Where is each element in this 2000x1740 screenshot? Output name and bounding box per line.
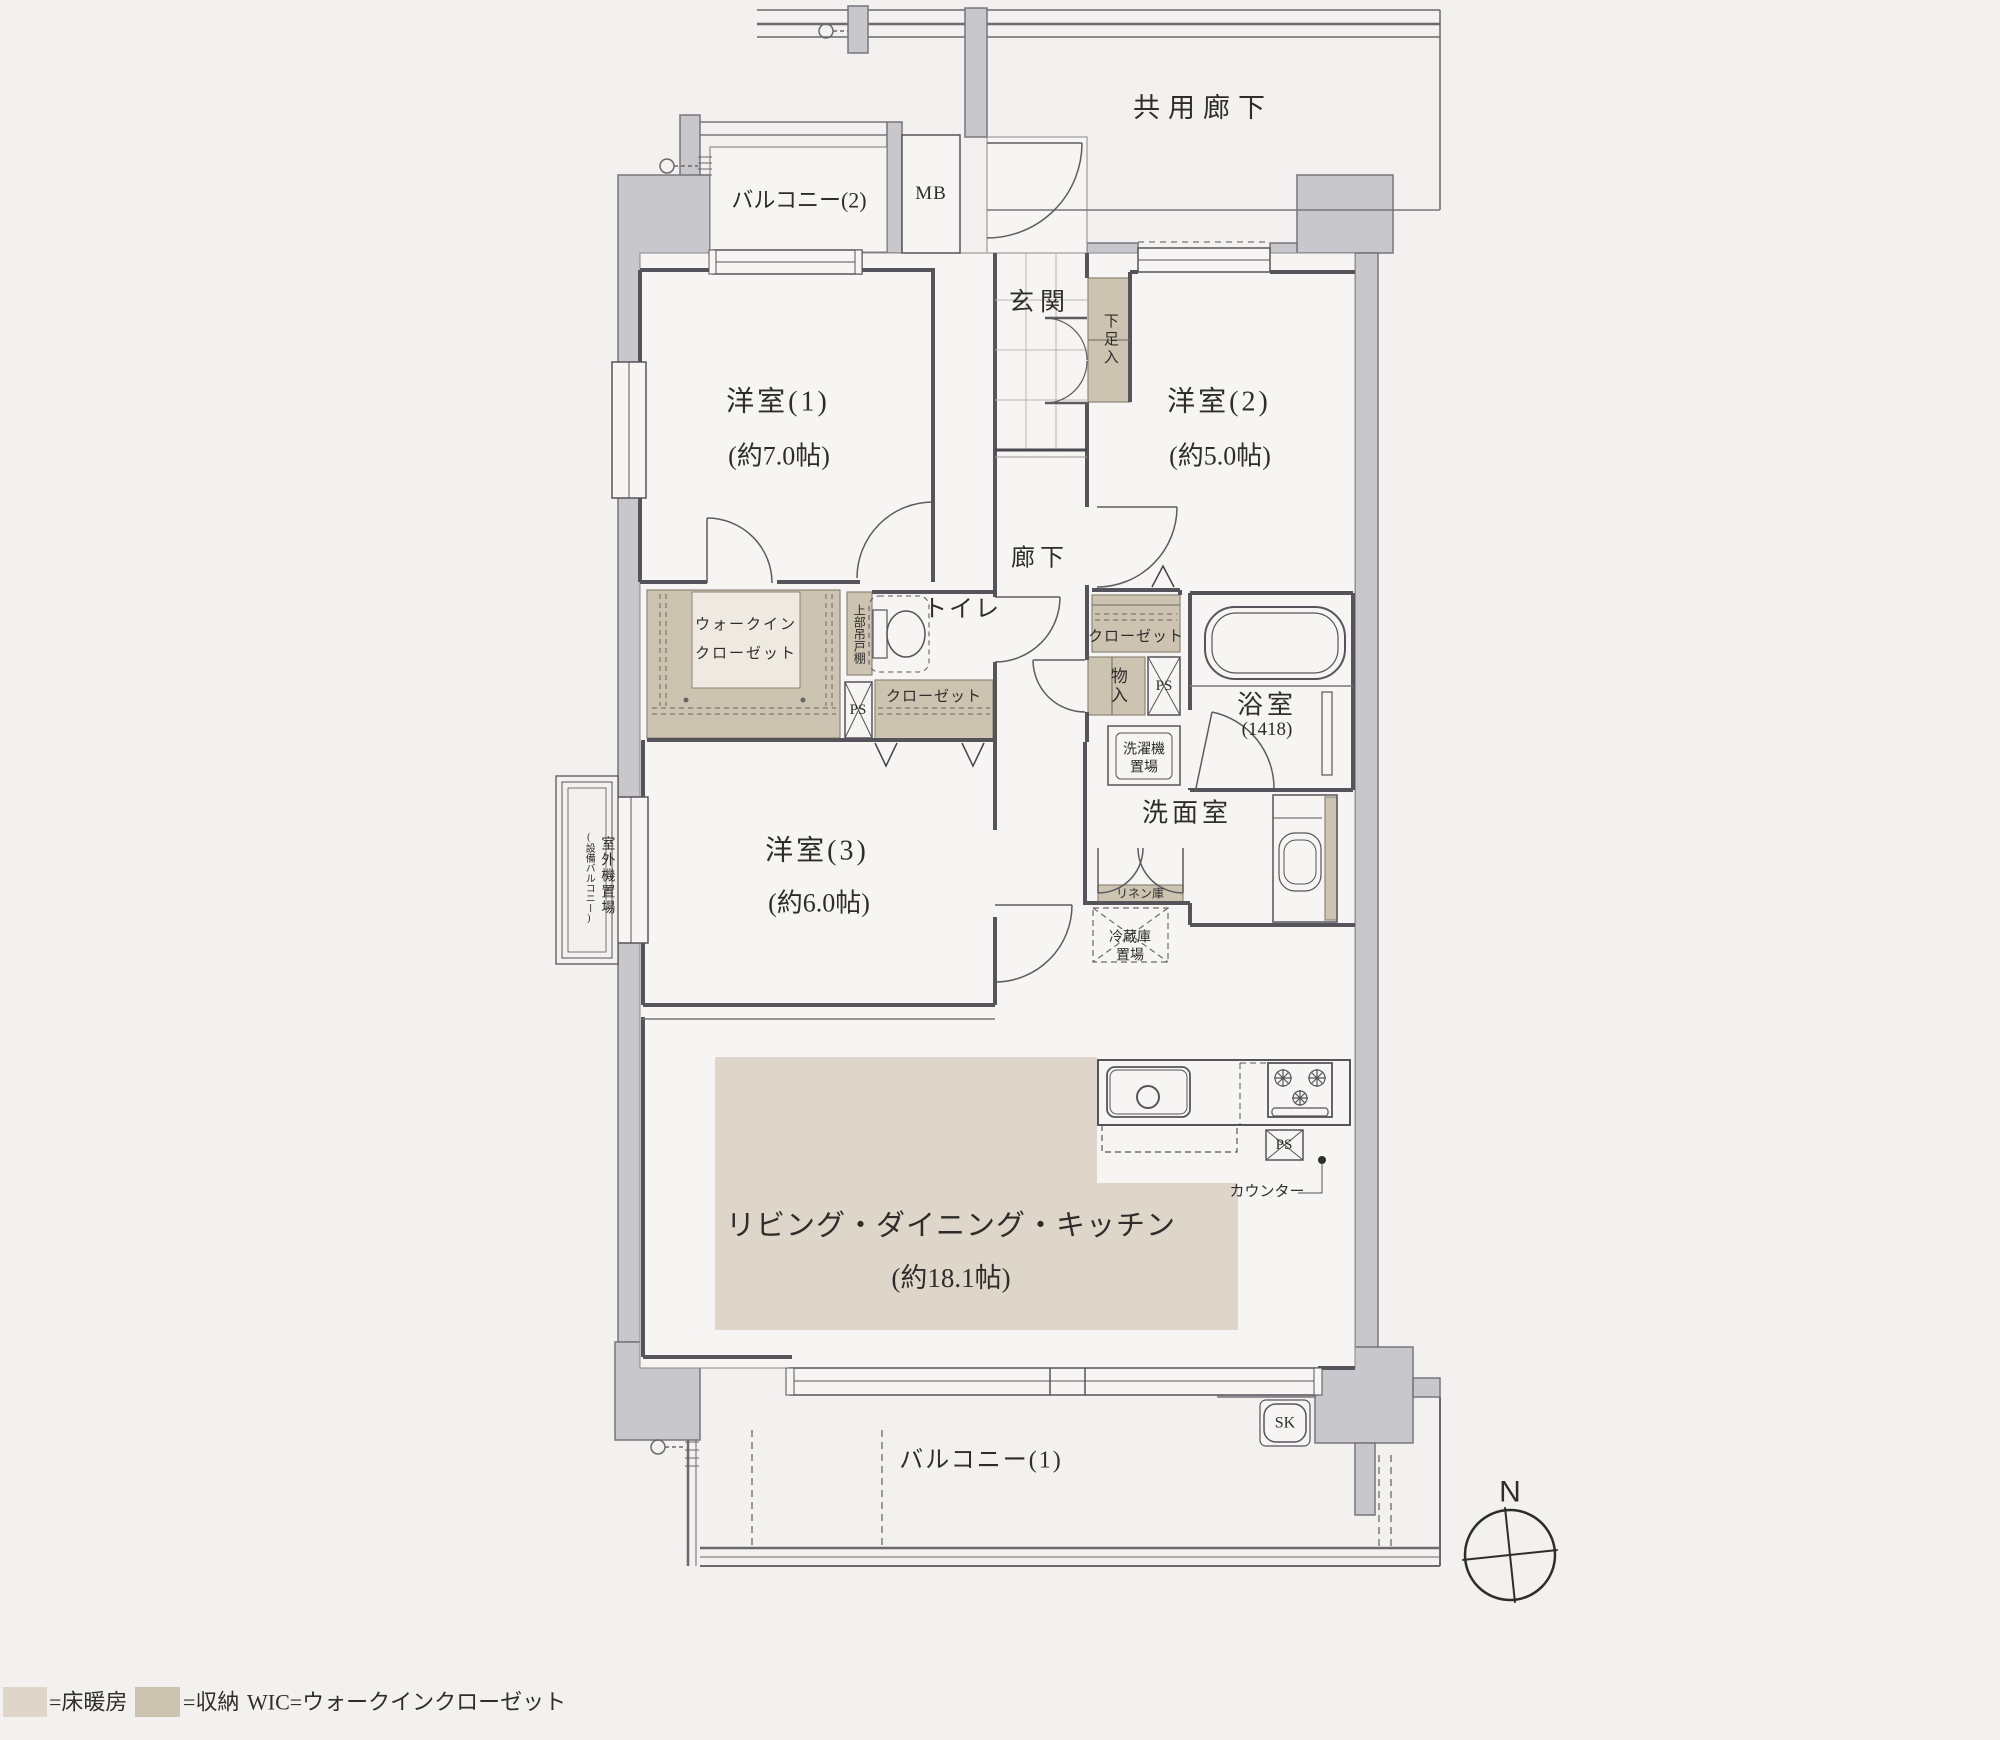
label-bath-size: (1418) <box>1242 720 1293 740</box>
label-balcony1: バルコニー(1) <box>899 1448 1063 1473</box>
label-upper-cabinet: 上部吊戸棚 <box>853 604 866 664</box>
wall-pillar-top <box>848 6 868 53</box>
window-room1-balcony <box>709 250 862 274</box>
label-closet-room3: クローゼット <box>886 690 982 706</box>
label-linen: リネン庫 <box>1116 888 1164 901</box>
legend-storage-label: =収納 <box>183 1690 239 1713</box>
label-wic-line2: クローゼット <box>695 647 797 663</box>
floor-plan: 共用廊下 バルコニー(2) MB 玄関 下足入 洋室(1) (約7.0帖) 洋室… <box>0 0 2000 1740</box>
label-ps-kitchen: PS <box>1276 1138 1293 1154</box>
label-mb: MB <box>915 184 947 204</box>
label-washroom: 洗面室 <box>1142 799 1232 826</box>
wic-inner <box>692 592 800 688</box>
label-storage-small: 物入 <box>1108 667 1126 705</box>
label-outdoor-unit: 室外機置場 <box>599 836 614 916</box>
label-ldk: リビング・ダイニング・キッチン <box>726 1211 1176 1241</box>
window-room2-corridor <box>1138 242 1270 272</box>
window-room1-left <box>612 362 646 498</box>
label-counter: カウンター <box>1229 1185 1304 1201</box>
label-bath: 浴室 <box>1237 691 1297 718</box>
label-room3: 洋室(3) <box>765 836 869 865</box>
window-ldk-balcony <box>786 1368 1322 1395</box>
label-hallway: 廊下 <box>1011 546 1069 571</box>
wall-right <box>1355 253 1378 1378</box>
label-compass-north: N <box>1499 1476 1521 1508</box>
legend-floor-heating-swatch <box>3 1687 47 1717</box>
label-washer-line1: 洗濯機 <box>1123 744 1165 759</box>
label-shoe-cabinet: 下足入 <box>1101 313 1117 367</box>
legend-floor-heating-label: =床暖房 <box>49 1690 127 1713</box>
label-fridge-line1: 冷蔵庫 <box>1109 932 1151 947</box>
label-ps-east: PS <box>1156 679 1173 695</box>
wall-pillar-topleft <box>680 115 700 177</box>
label-fridge-line2: 置場 <box>1116 950 1144 965</box>
wall-balcony1-arm-right <box>1413 1378 1440 1397</box>
compass-icon <box>1457 1502 1563 1608</box>
label-balcony2: バルコニー(2) <box>731 188 866 211</box>
label-washer-line2: 置場 <box>1130 762 1158 777</box>
window-room3-left <box>614 797 648 943</box>
label-closet-room2: クローゼット <box>1088 630 1184 646</box>
label-sk: SK <box>1275 1416 1295 1433</box>
wall-entrance-left <box>965 8 987 137</box>
label-ldk-size: (約18.1帖) <box>891 1264 1010 1292</box>
wall-topright-block <box>1297 175 1393 253</box>
label-outdoor-unit-sub: (設備バルコニー) <box>583 832 594 924</box>
label-room1-size: (約7.0帖) <box>728 442 830 469</box>
legend-storage-swatch <box>135 1687 180 1717</box>
label-wic-line1: ウォークイン <box>695 618 797 634</box>
label-entrance: 玄関 <box>1009 290 1071 316</box>
entrance-recess <box>987 137 1087 253</box>
label-room2-size: (約5.0帖) <box>1169 442 1271 469</box>
wall-balcony1-stem <box>1355 1443 1375 1515</box>
label-room1: 洋室(1) <box>726 387 830 416</box>
label-ps-west: PS <box>850 703 867 719</box>
wall-balcony2-right <box>887 122 902 253</box>
label-room3-size: (約6.0帖) <box>768 889 870 916</box>
floor-plan-drawing <box>0 0 2000 1740</box>
label-toilet: トイレ <box>923 597 1001 622</box>
vanity-side-storage <box>1325 797 1337 920</box>
legend-wic-label: WIC=ウォークインクローゼット <box>247 1690 566 1713</box>
label-room2: 洋室(2) <box>1167 387 1271 416</box>
label-common-corridor: 共用廊下 <box>1133 94 1273 122</box>
